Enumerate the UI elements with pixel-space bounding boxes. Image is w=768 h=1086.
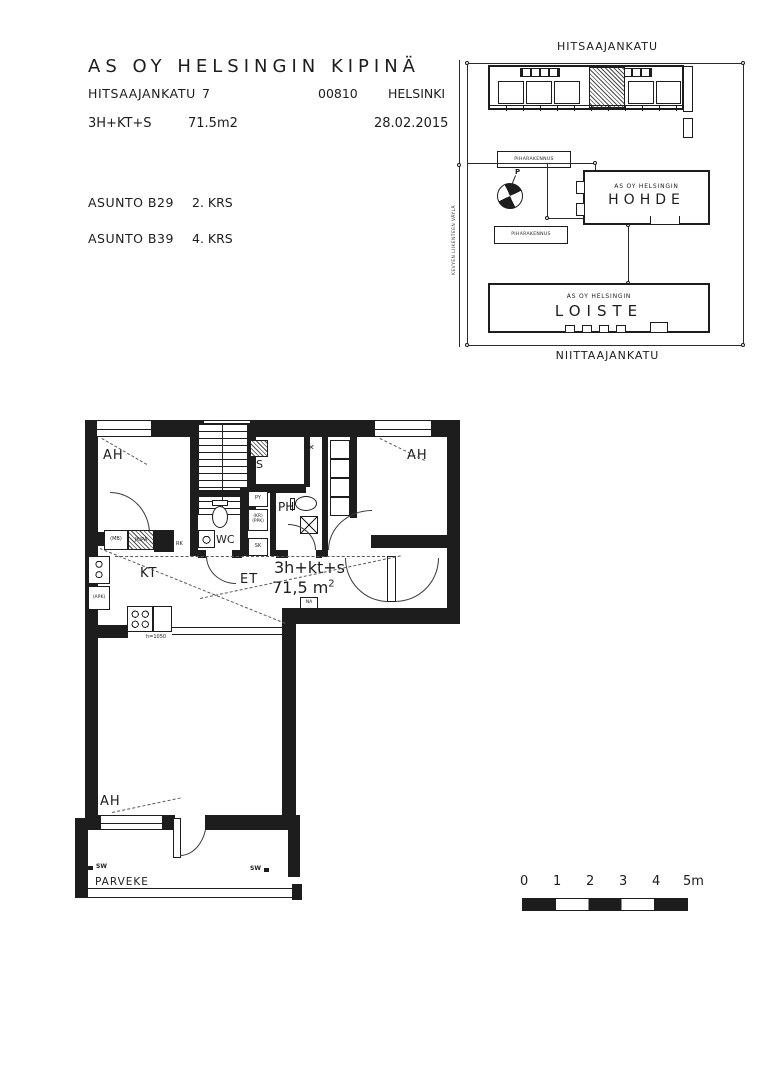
site-plan: HITSAAJANKATU PIHARAKENNUS PIHARAKENNUS … [455,38,760,368]
wall [85,638,98,830]
balcony-railing [88,888,292,898]
room-label-hall: ET [240,572,258,587]
building-unit [656,81,681,104]
kitchen-counter [153,606,172,632]
wall [322,437,328,557]
closet [330,497,350,516]
building-unit [554,81,580,104]
survey-dot [457,163,461,167]
half-height-wall [172,627,282,635]
document-title: AS OY HELSINGIN KIPINÄ [88,56,420,77]
stairwell-hatch [589,67,625,108]
unit-area: 71.5m2 [188,116,238,131]
tag-ppk: (PPK) [252,520,264,525]
wall [371,535,460,548]
coat-rack-na: NA [300,597,318,609]
outbuilding-1: PIHARAKENNUS [497,151,571,168]
wall [240,487,248,556]
flue-block [154,530,174,552]
room-label-bathroom: PH [278,500,294,514]
toilet [295,496,317,511]
room-label-balcony: PARVEKE [95,876,149,888]
marker-sw-right [264,868,269,872]
sauna-stove [250,440,268,457]
unit-type: 3H+KT+S [88,116,152,131]
survey-dot [465,343,469,347]
vent-icon: ✕ [308,443,315,452]
site-building-kipina [488,65,684,110]
plot-line-bottom [467,345,743,346]
tag-sw-left: SW [96,863,107,870]
building-annex [683,66,693,112]
outbuilding-2: PIHARAKENNUS [494,226,568,244]
window [100,815,163,830]
cabinet-kr-ppk: (KR) (PPK) [248,509,268,531]
marker-sw-left [88,866,93,870]
toilet [212,506,228,528]
window-swing-line [112,797,181,813]
appliance-mb: (MB) [104,530,128,550]
street-name: HITSAAJANKATU [88,86,196,101]
dishwasher-reservation: (APK) [88,586,110,610]
window [96,420,152,437]
closet [330,478,350,497]
sight-line [115,556,385,557]
wall [292,884,302,900]
window [374,420,432,437]
hohde-name-line1: AS OY HELSINGIN [585,183,708,190]
door-arc [345,558,388,602]
washing-machine [198,530,215,548]
cleaning-closet-sk: SK [248,538,268,556]
survey-dot [465,61,469,65]
building-notch [576,181,585,194]
closet [330,440,350,459]
apartment-2-floor: 4. KRS [192,231,233,246]
wall [350,437,357,518]
plot-line-left [467,63,468,345]
building-notch [650,216,680,225]
connector-line [547,218,583,219]
unit-area-exponent: 2 [328,579,334,590]
room-label-wc: WC [216,533,235,546]
stove [127,606,153,632]
building-unit [498,81,524,104]
apartment-2-unit: ASUNTO B39 [88,231,174,246]
cabinet-py: PY [248,491,268,507]
connector-line [468,163,595,164]
scale-tick: 0 [520,874,528,889]
north-label: P [515,168,520,176]
closet [330,459,350,478]
tag-sw-right: SW [250,865,261,872]
fridge-freezer: JK/PA [128,530,154,550]
door-arc [206,556,236,584]
document-date: 28.02.2015 [374,116,448,131]
plot-line-top [467,63,743,64]
wall [447,548,460,610]
survey-dot [741,61,745,65]
building-notch [650,322,668,333]
kitchen-sink [88,556,110,584]
loiste-name-line2: LOISTE [490,302,708,320]
scale-bar: 0 1 2 3 4 5m [515,872,715,917]
roof-structure [520,68,560,77]
tag-rk: RK [176,541,183,547]
city: HELSINKI [388,86,445,101]
loiste-name-line1: AS OY HELSINGIN [490,293,708,300]
wall [85,625,128,638]
site-street-top-label: HITSAAJANKATU [455,40,760,53]
survey-dot [593,161,597,165]
door-arc [395,558,439,602]
connector-line [628,225,629,283]
building-notch [565,325,575,333]
north-arrow-icon [497,183,523,209]
pedestrian-path-label: KEVYEN LIIKENTEEN VÄYLÄ [452,150,457,275]
site-street-bottom-label: NIITTAAJANKATU [455,349,760,362]
street-number: 7 [202,86,210,101]
connector-line [547,163,548,218]
wall [288,815,300,877]
scale-tick: 2 [586,874,594,889]
plot-line-right [743,63,744,345]
door-arc [110,492,150,534]
postal-code: 00810 [318,86,358,101]
wall [270,493,276,556]
room-label-sauna: S [256,458,263,471]
door-arc [328,510,372,550]
site-building-loiste: AS OY HELSINGIN LOISTE [488,283,710,333]
site-building-hohde: AS OY HELSINGIN HOHDE [583,170,710,225]
building-notch [582,325,592,333]
scale-tick: 5m [683,874,704,889]
building-entries [490,105,682,111]
building-unit [628,81,654,104]
hohde-name-line2: HOHDE [585,192,708,208]
plot-line-left-outer [459,60,460,347]
building-notch [576,203,585,216]
door-arc [180,820,207,856]
scale-tick: 1 [553,874,561,889]
wall [190,437,198,556]
wall [296,608,460,624]
scale-tick: 3 [619,874,627,889]
room-label-ah-bottom: AH [100,794,121,809]
building-notch [616,325,626,333]
scale-tick: 4 [652,874,660,889]
wall [282,608,296,830]
apartment-1-floor: 2. KRS [192,195,233,210]
survey-dot [545,216,549,220]
wall [447,420,460,547]
apartment-1-unit: ASUNTO B29 [88,195,174,210]
scale-bar-ruler [522,898,688,911]
survey-dot [741,343,745,347]
building-notch [599,325,609,333]
floor-plan-document: { "header": { "title": "AS OY HELSINGIN … [0,0,768,1086]
counter-height-label: h=1050 [146,634,166,640]
wall [75,818,88,898]
wall [198,490,240,497]
building-annex-box [683,118,693,138]
building-unit [526,81,552,104]
wall [205,815,282,830]
